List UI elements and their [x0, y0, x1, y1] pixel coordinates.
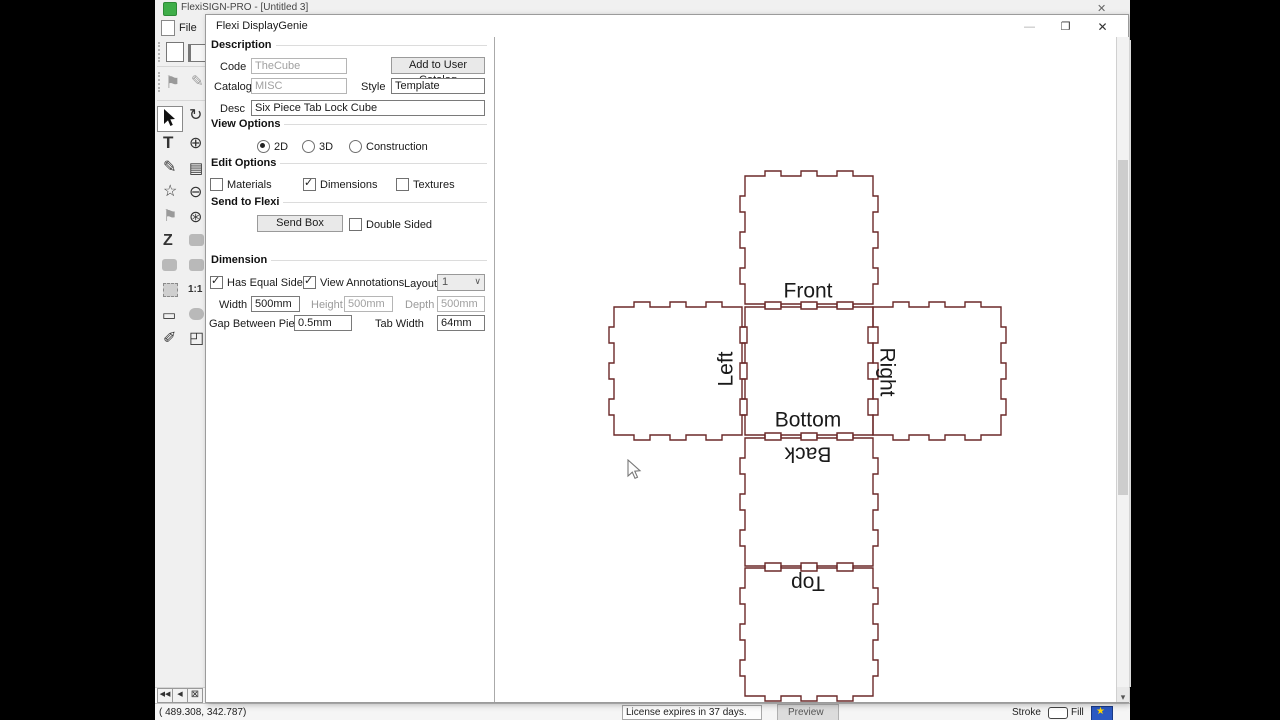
dimensions-checkbox-box[interactable]: [303, 178, 316, 191]
radio-construction-circle[interactable]: [349, 140, 362, 153]
view-annotations-label: View Annotations: [320, 277, 404, 289]
radio-construction[interactable]: Construction: [349, 140, 428, 153]
hand-tool-icon[interactable]: [189, 308, 204, 320]
front-panel-label: Front: [783, 280, 832, 303]
preview-tab-label: Preview: [788, 707, 824, 718]
menu-file[interactable]: File: [179, 22, 197, 34]
layout-value: 1: [442, 276, 448, 288]
bottom-panel-label: Bottom: [775, 409, 842, 432]
double-sided-label: Double Sided: [366, 219, 432, 231]
pan-page-icon[interactable]: [189, 234, 204, 246]
textures-checkbox-box[interactable]: [396, 178, 409, 191]
materials-label: Materials: [227, 179, 272, 191]
shapes-tool-icon[interactable]: ☆: [163, 184, 177, 200]
dialog-title: Flexi DisplayGenie: [216, 20, 308, 32]
weld-tool-icon[interactable]: ⚑: [163, 209, 177, 225]
license-status-box: License expires in 37 days.: [622, 705, 762, 720]
radio-3d-circle[interactable]: [302, 140, 315, 153]
double-sided-checkbox-box[interactable]: [349, 218, 362, 231]
edit-options-header: Edit Options: [211, 157, 487, 169]
width-field[interactable]: [251, 296, 300, 312]
actual-size-icon[interactable]: 1:1: [188, 285, 202, 295]
materials-checkbox[interactable]: Materials: [210, 178, 272, 191]
radio-2d[interactable]: 2D: [257, 140, 288, 153]
scroll-down-icon: ▾: [1121, 692, 1126, 702]
depth-label: Depth: [405, 299, 434, 311]
style-label: Style: [361, 81, 385, 93]
radio-construction-label: Construction: [366, 141, 428, 153]
view-annotations-checkbox[interactable]: View Annotations: [303, 276, 404, 289]
show-page-icon[interactable]: ◰: [189, 331, 204, 347]
paste-icon[interactable]: ✎: [191, 74, 204, 89]
license-status: License expires in 37 days.: [626, 707, 747, 718]
catalog-label: Catalog: [214, 81, 252, 93]
materials-checkbox-box[interactable]: [210, 178, 223, 191]
radio-2d-circle[interactable]: [257, 140, 270, 153]
document-icon: [161, 20, 175, 36]
ruler-tool-icon[interactable]: ▭: [162, 308, 176, 323]
mouse-cursor: [627, 459, 643, 481]
textures-label: Textures: [413, 179, 455, 191]
toolbar-separator: [157, 100, 205, 101]
fill-swatch[interactable]: ★: [1091, 706, 1113, 720]
code-label: Code: [220, 61, 246, 73]
close-tab-button[interactable]: ⊠: [187, 688, 203, 703]
chevron-down-icon: ∨: [474, 276, 481, 287]
scrollbar-down-button[interactable]: ▾: [1117, 687, 1129, 702]
radio-2d-label: 2D: [274, 141, 288, 153]
stroke-swatch[interactable]: [1048, 707, 1068, 719]
view-mode-icon[interactable]: [189, 259, 204, 271]
cube-template-preview: FrontLeftBottomRightBackTop: [495, 37, 1117, 702]
contour-tool-icon[interactable]: [162, 259, 177, 271]
textures-checkbox[interactable]: Textures: [396, 178, 455, 191]
app-logo-icon: [163, 2, 177, 16]
fill-label: Fill: [1071, 707, 1084, 718]
effects-tool-icon[interactable]: Z: [163, 233, 173, 249]
height-field[interactable]: [344, 296, 393, 312]
depth-field[interactable]: [437, 296, 485, 312]
gap-between-pieces-field[interactable]: [294, 315, 352, 331]
dimensions-label: Dimensions: [320, 179, 377, 191]
rotate-view-icon[interactable]: ↻: [189, 108, 202, 124]
text-tool-icon[interactable]: T: [163, 134, 173, 151]
select-arrow-icon: [158, 107, 180, 129]
has-equal-sides-checkbox-box[interactable]: [210, 276, 223, 289]
prev-page-button[interactable]: ◀: [172, 688, 188, 703]
has-equal-sides-checkbox[interactable]: Has Equal Sides: [210, 276, 308, 289]
dialog-maximize-icon[interactable]: ❐: [1057, 20, 1074, 35]
zoom-selection-icon[interactable]: ⊛: [189, 210, 202, 226]
app-title: FlexiSIGN-PRO - [Untitled 3]: [181, 2, 308, 13]
layout-label: Layout: [404, 278, 437, 290]
dialog-close-icon[interactable]: ✕: [1094, 20, 1111, 35]
right-panel-label: Right: [875, 347, 898, 396]
style-field[interactable]: [391, 78, 485, 94]
has-equal-sides-label: Has Equal Sides: [227, 277, 308, 289]
toolbar-separator: [157, 66, 205, 67]
zoom-in-icon[interactable]: ⊕: [189, 136, 202, 152]
cursor-coordinates: ( 489.308, 342.787): [159, 707, 246, 718]
catalog-field[interactable]: [251, 78, 347, 94]
code-field[interactable]: [251, 58, 347, 74]
view-options-header: View Options: [211, 118, 487, 130]
eyedropper-tool-icon[interactable]: ✐: [163, 331, 176, 347]
toolbar-handle[interactable]: [158, 72, 163, 92]
layout-dropdown[interactable]: 1 ∨: [437, 274, 485, 291]
add-to-user-catalog-button[interactable]: Add to User Catalog: [391, 57, 485, 74]
desc-field[interactable]: [251, 100, 485, 116]
description-header: Description: [211, 39, 487, 51]
stroke-label: Stroke: [1012, 707, 1041, 718]
zoom-out-icon[interactable]: ⊖: [189, 185, 202, 201]
bezier-tool-icon[interactable]: ✎: [163, 160, 176, 176]
tab-width-label: Tab Width: [375, 318, 424, 330]
top-panel-label: Top: [791, 571, 825, 594]
radio-3d-label: 3D: [319, 141, 333, 153]
select-within-icon[interactable]: ⚑: [165, 74, 180, 91]
scrollbar-thumb[interactable]: [1118, 160, 1128, 495]
left-panel-label: Left: [715, 351, 738, 386]
width-label: Width: [219, 299, 247, 311]
toolbar-handle[interactable]: [158, 42, 163, 62]
marquee-tool-icon[interactable]: [163, 283, 178, 297]
select-tool-active-box[interactable]: [157, 106, 183, 132]
preview-scrollbar[interactable]: ▾: [1116, 37, 1129, 702]
new-document-icon[interactable]: [166, 42, 184, 62]
dimension-header: Dimension: [211, 254, 487, 266]
screen: FlexiSIGN-PRO - [Untitled 3] ✕ File ⚑ ✎ …: [0, 0, 1280, 720]
double-sided-checkbox[interactable]: Double Sided: [349, 218, 432, 231]
radio-3d[interactable]: 3D: [302, 140, 333, 153]
first-page-button[interactable]: ◀◀: [157, 688, 173, 703]
statusbar: ( 489.308, 342.787) License expires in 3…: [155, 703, 1130, 720]
height-label: Height: [311, 299, 343, 311]
displaygenie-dialog: Flexi DisplayGenie — ❐ ✕ Description Cod…: [205, 14, 1129, 703]
tab-width-field[interactable]: [437, 315, 485, 331]
send-box-button[interactable]: Send Box: [257, 215, 343, 232]
dimensions-checkbox[interactable]: Dimensions: [303, 178, 377, 191]
dialog-minimize-icon[interactable]: —: [1021, 20, 1038, 35]
send-to-flexi-header: Send to Flexi: [211, 196, 487, 208]
desc-label: Desc: [220, 103, 245, 115]
page-view-icon[interactable]: ▤: [189, 161, 203, 176]
view-annotations-checkbox-box[interactable]: [303, 276, 316, 289]
fill-star-icon: ★: [1096, 706, 1105, 717]
preview-tab[interactable]: Preview: [777, 704, 839, 720]
back-panel-label: Back: [784, 442, 831, 465]
